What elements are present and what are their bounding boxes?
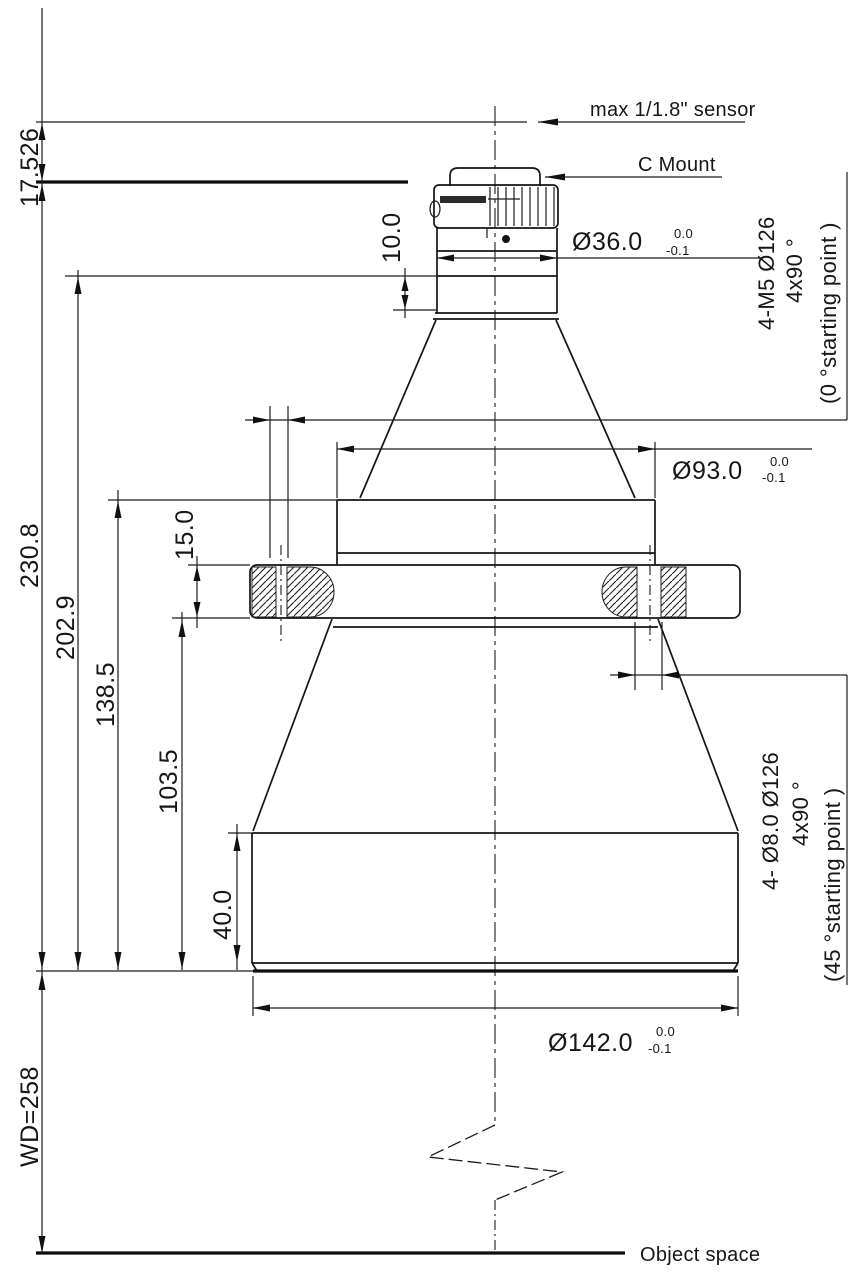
break-symbol (428, 1125, 562, 1200)
object-space-label: Object space (640, 1244, 760, 1266)
hatch-left-outer (252, 567, 276, 617)
d8-note-line3: (45 °starting point ) (820, 787, 845, 982)
dim-103-5: 103.5 (155, 749, 183, 814)
dim-15-0: 15.0 (171, 509, 199, 560)
extension-lines (36, 122, 738, 1253)
d8-note-line2: 4x90 ° (788, 781, 813, 846)
ring-side-knob (430, 201, 440, 217)
knurl-ribs (490, 187, 554, 226)
note-m5-holes: 4-M5 Ø126 4x90 ° (0 °starting point ) (754, 216, 841, 404)
dim-dia-142: Ø142.0 (548, 1029, 633, 1057)
centerlines (281, 106, 650, 1253)
note-d8-holes: 4- Ø8.0 Ø126 4x90 ° (45 °starting point … (758, 752, 845, 982)
lens-dimension-drawing: max 1/1.8" sensor C Mount Object space 1… (0, 0, 856, 1280)
m5-note-line1: 4-M5 Ø126 (754, 216, 779, 330)
dia142-tol-lower: -0.1 (648, 1041, 672, 1056)
dim-138-5: 138.5 (92, 662, 120, 727)
flange-section-hatching (252, 567, 686, 617)
dim-202-9: 202.9 (52, 595, 80, 660)
dim-sensor-to-flange: 17.526 (16, 128, 44, 207)
drawing-page: max 1/1.8" sensor C Mount Object space 1… (0, 0, 856, 1280)
focus-ring (434, 185, 558, 228)
hatch-right-inner (602, 567, 637, 617)
dim-10-0: 10.0 (378, 212, 406, 263)
ring-label-window (440, 196, 486, 203)
m5-note-line2: 4x90 ° (782, 238, 807, 303)
annotations: max 1/1.8" sensor C Mount Object space (590, 99, 760, 1266)
hatch-left-inner (287, 567, 334, 617)
dim-dia-93: Ø93.0 (672, 457, 743, 485)
sensor-label: max 1/1.8" sensor (590, 99, 756, 121)
dim-230-8: 230.8 (16, 523, 44, 588)
dimension-labels: 17.526 230.8 202.9 138.5 103.5 15.0 40.0… (16, 128, 789, 1167)
m5-note-line3: (0 °starting point ) (816, 222, 841, 404)
arrowheads (39, 119, 739, 1254)
set-screw-dot (502, 235, 510, 243)
dia36-tol-lower: -0.1 (666, 243, 690, 258)
dim-dia-36: Ø36.0 (572, 228, 643, 256)
dia36-tol-upper: 0.0 (674, 226, 693, 241)
dia93-tol-lower: -0.1 (762, 470, 786, 485)
d8-note-line1: 4- Ø8.0 Ø126 (758, 752, 783, 890)
dia142-tol-upper: 0.0 (656, 1024, 675, 1039)
hatch-right-outer (661, 567, 686, 617)
dimension-lines (42, 8, 847, 1253)
dim-working-distance: WD=258 (16, 1066, 44, 1167)
c-mount-label: C Mount (638, 154, 716, 176)
dia93-tol-upper: 0.0 (770, 454, 789, 469)
dim-40-0: 40.0 (209, 889, 237, 940)
